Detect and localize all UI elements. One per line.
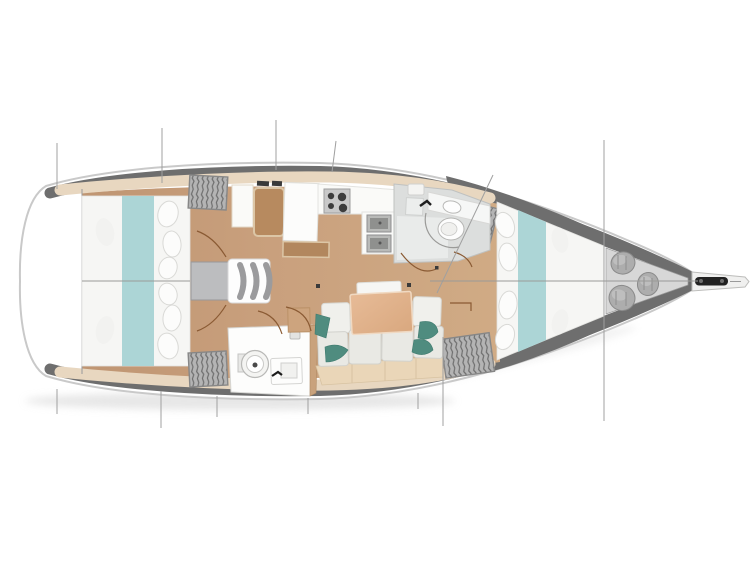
burner (328, 203, 334, 209)
step (253, 265, 257, 297)
nav-seat (254, 188, 284, 236)
floor-fitting-dot (316, 284, 320, 288)
burner (338, 193, 346, 201)
basin (281, 363, 297, 378)
instrument-panel (257, 181, 269, 187)
nav-cabinet (232, 185, 253, 227)
burner (328, 193, 334, 199)
chart-table (283, 182, 319, 241)
deck-plan-stage (0, 0, 751, 563)
bowsprit (692, 272, 749, 291)
door-pivot-dot (435, 266, 439, 270)
hanging-locker-aft-port (188, 175, 228, 210)
soap-dish (290, 332, 300, 339)
engine-compartment (191, 262, 228, 300)
toilet-seat (441, 223, 457, 236)
nav-shelf (283, 242, 329, 258)
roller-pin (699, 279, 703, 283)
toilet-drain (253, 363, 258, 368)
deck-plan-svg (0, 0, 751, 563)
step (240, 265, 244, 297)
step (266, 265, 270, 297)
aft-head (228, 325, 318, 396)
burner (339, 204, 347, 212)
roller-pin (720, 279, 724, 283)
hanging-locker-aft-starboard (188, 351, 228, 387)
instrument-panel (272, 181, 282, 187)
saloon-table (350, 291, 413, 334)
floor-fitting-dot (407, 283, 411, 287)
companionway (191, 259, 270, 303)
hatch (408, 184, 424, 195)
hanging-locker-forward-starboard (441, 333, 495, 378)
